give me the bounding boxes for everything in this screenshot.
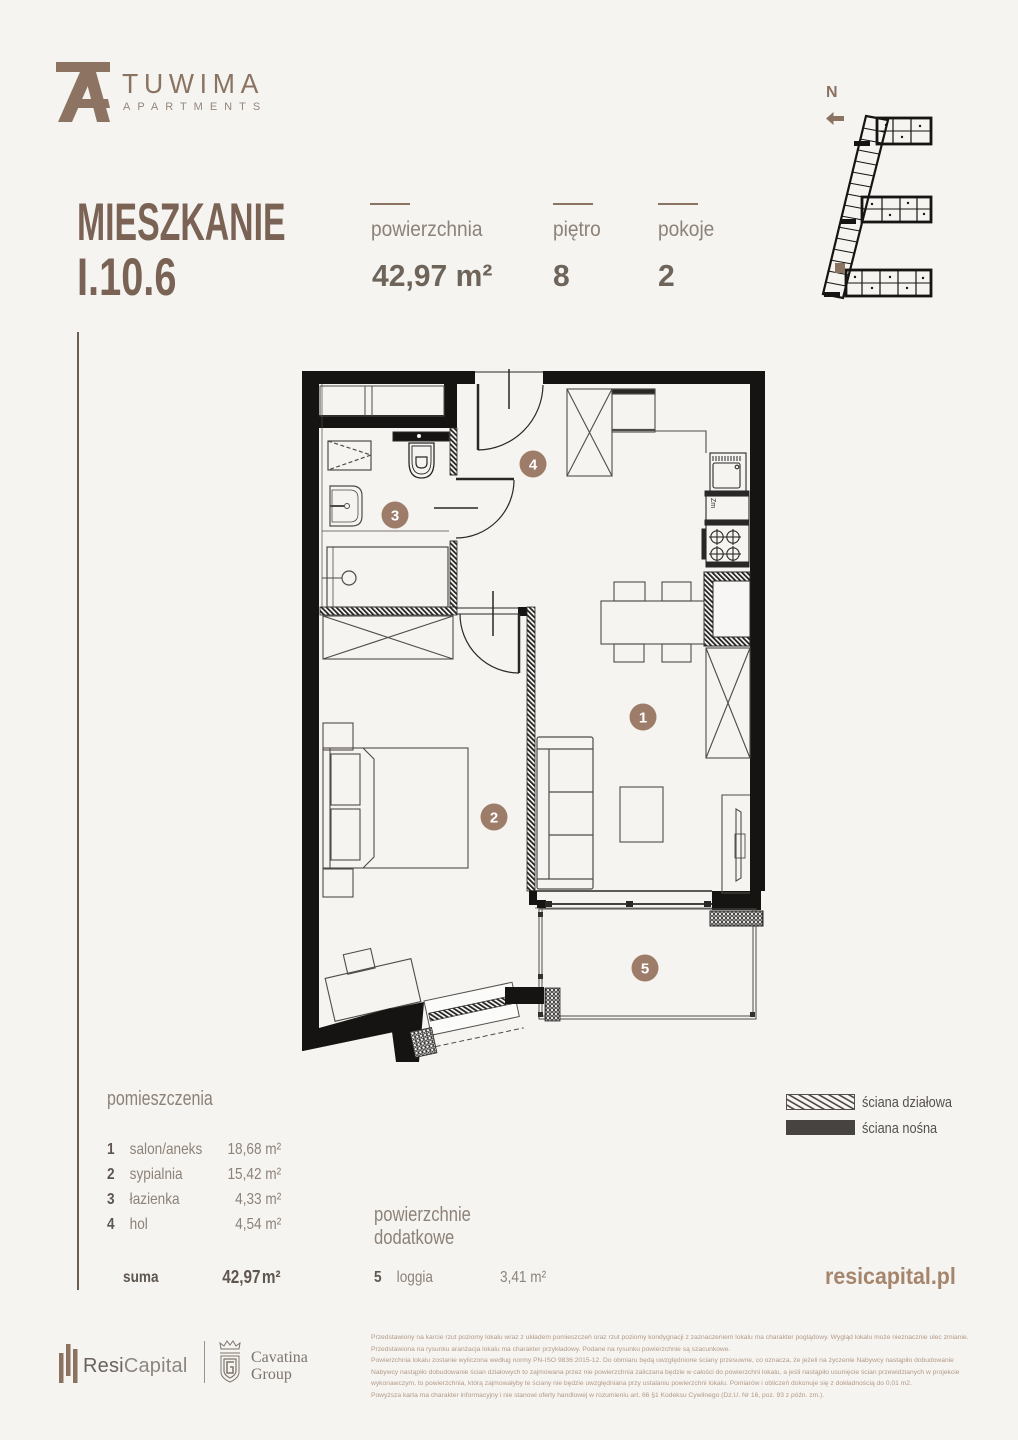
svg-text:4: 4 bbox=[529, 457, 538, 474]
svg-text:3: 3 bbox=[391, 508, 399, 525]
svg-text:Zm: Zm bbox=[709, 498, 716, 508]
svg-text:5: 5 bbox=[641, 961, 649, 978]
svg-text:1: 1 bbox=[639, 710, 647, 727]
svg-text:2: 2 bbox=[490, 810, 498, 827]
